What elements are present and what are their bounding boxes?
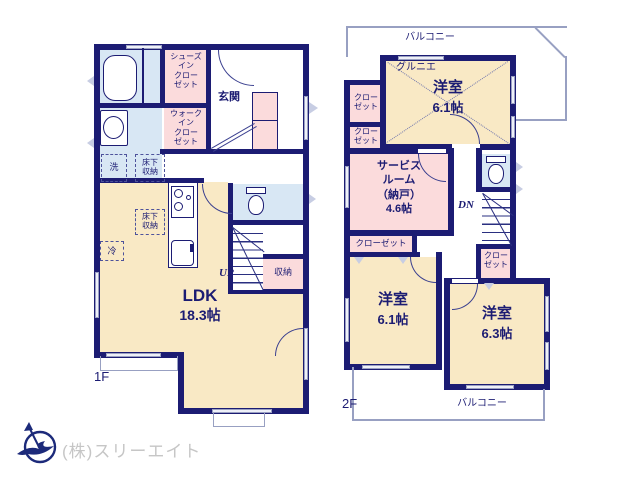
toilet1-bowl-icon (248, 195, 264, 215)
company-name: (株)スリーエイト (62, 442, 242, 462)
closet-left-upper-label: クローゼット (347, 93, 385, 112)
balcony-diagonal (535, 27, 566, 58)
window (545, 342, 549, 370)
vent-wedge-icon (87, 76, 94, 86)
closet-left-lower-label: クローゼット (347, 127, 385, 146)
wall (476, 148, 482, 192)
genkan-cabinet-divider (252, 120, 278, 121)
toilet2-tank-icon (486, 156, 506, 163)
wall (258, 254, 309, 259)
balcony-top-outline (516, 119, 567, 121)
window (345, 298, 349, 342)
bath-partition (142, 48, 144, 104)
window (126, 45, 162, 49)
company-logo-icon (14, 420, 62, 468)
fridge-label: 冷 (103, 246, 121, 257)
stairs-down-label: DN (458, 199, 474, 211)
balcony-bottom-outline (352, 419, 545, 421)
door-gap (452, 279, 478, 283)
room-c-name-label: 洋室 (467, 305, 527, 323)
burner-icon (174, 189, 183, 198)
grenier-label: グルニエ (392, 62, 440, 74)
wall (206, 149, 309, 154)
closet-wedge-icon (398, 257, 408, 264)
wall (344, 80, 386, 85)
genkan-cabinet (252, 92, 278, 150)
room-b-size-label: 6.1帖 (363, 312, 423, 327)
wall (480, 144, 516, 150)
wall (160, 149, 211, 154)
genkan-door-arc (218, 50, 254, 86)
storage1-label: 収納 (265, 267, 301, 278)
window (511, 116, 515, 138)
burner-icon (174, 202, 183, 211)
genkan-label: 玄関 (213, 91, 245, 104)
balcony-top-outline (565, 56, 567, 121)
vent-wedge-icon (87, 138, 94, 148)
window (545, 296, 549, 332)
wall (544, 278, 550, 390)
wall (94, 103, 166, 108)
closet-right-label: クローゼット (479, 251, 513, 270)
vent-wedge-icon (516, 162, 523, 172)
tap-icon (190, 244, 194, 252)
balcony-bottom-outline (543, 389, 545, 420)
wall (228, 220, 309, 225)
vent-wedge-icon (516, 184, 523, 194)
burner-icon (186, 195, 191, 200)
service-room-label: サービスルーム（納戸）4.6帖 (352, 159, 446, 216)
ldk-name-label: LDK (168, 286, 232, 306)
wall (344, 230, 454, 236)
toilet1-tank-icon (246, 187, 266, 194)
window (304, 328, 308, 380)
balcony-top-outline (346, 26, 348, 57)
wall (160, 103, 211, 108)
window (511, 76, 515, 104)
wall (412, 230, 417, 257)
underfloor-wash-label: 床下収納 (137, 158, 163, 177)
floor1-label: 1F (94, 369, 120, 384)
wall (448, 148, 454, 236)
toilet1-fill (232, 184, 303, 222)
floor2-label: 2F (342, 396, 368, 411)
room-c-size-label: 6.3帖 (467, 326, 527, 341)
terrace-outline (213, 413, 265, 427)
shoes-closet-label: シューズインクローゼット (164, 52, 208, 90)
closet-mid-label: クローゼット (350, 238, 412, 248)
ldk-size-label: 18.3帖 (166, 307, 234, 324)
window (345, 166, 349, 208)
window (466, 385, 514, 389)
vent-wedge-icon (309, 194, 316, 204)
toilet2-bowl-icon (488, 164, 504, 184)
wall (436, 252, 442, 370)
closet-wedge-icon (354, 257, 364, 264)
laundry-label: 洗 (104, 162, 124, 173)
stairs-up-label: UP (219, 267, 234, 279)
closet-wedge-icon (484, 283, 494, 290)
balcony-bottom-label: バルコニー (448, 398, 516, 410)
window (398, 56, 444, 60)
balcony-top-label: バルコニー (398, 32, 462, 44)
balcony-bottom-outline (352, 367, 354, 421)
room-a-name-label: 洋室 (418, 79, 478, 97)
room-a-size-label: 6.1帖 (418, 100, 478, 115)
washbasin-bowl-icon (103, 116, 124, 139)
wall (444, 278, 450, 390)
door-gap (418, 149, 446, 153)
wall (178, 352, 184, 414)
entrance-door (304, 96, 308, 140)
window (362, 365, 410, 369)
room-b-name-label: 洋室 (363, 291, 423, 309)
door-wedge-icon (309, 102, 318, 114)
walkin-closet-label: ウォークインクローゼット (164, 109, 208, 147)
genkan-step-line (211, 123, 255, 149)
ldk-fill-lower (183, 352, 303, 410)
window (95, 272, 99, 318)
genkan-step-line (213, 126, 257, 152)
underfloor-ldk-label: 床下収納 (137, 212, 163, 231)
floorplan-canvas: シューズインクローゼット ウォークインクローゼット 玄関 洗 床下収納 床下収納… (0, 0, 640, 480)
bathtub-icon (103, 55, 137, 101)
